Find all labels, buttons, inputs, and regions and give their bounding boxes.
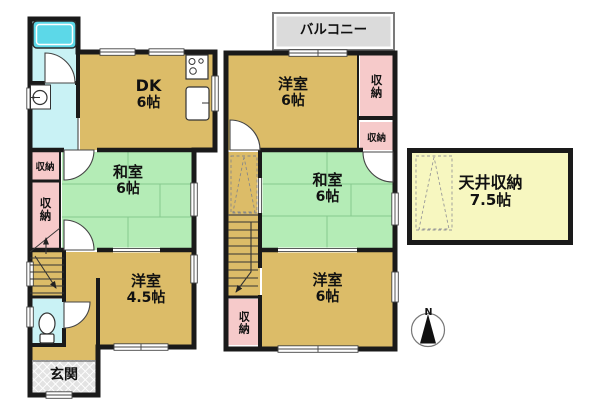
compass-north-label: N	[422, 307, 435, 318]
fusuma-1f	[113, 248, 160, 253]
washbasin-icon	[31, 85, 51, 109]
ladder-symbol-2f	[233, 157, 255, 212]
storage-sw-label: 収納	[231, 302, 256, 343]
washitsu-1f-label: 和室 6帖	[62, 164, 194, 197]
attic-storage-label: 天井収納 7.5帖	[412, 174, 569, 210]
youshitsu-north-label: 洋室 6帖	[228, 76, 358, 109]
compass-icon	[412, 314, 445, 347]
storage-upper-1f-label: 収納	[30, 159, 60, 173]
washitsu1f-door-arc-bottom	[64, 220, 94, 250]
storage-lower-1f-label: 収納	[33, 186, 58, 232]
balcony-label: バルコニー	[272, 23, 395, 39]
youshitsu45-label: 洋室 4.5帖	[98, 273, 194, 306]
genkan-label: 玄関	[31, 367, 97, 383]
toilet-icon	[39, 313, 55, 343]
bathtub-icon	[33, 21, 76, 48]
storage-ne-tall-label: 収納	[362, 61, 391, 111]
washitsu-2f-label: 和室 6帖	[262, 172, 393, 205]
youshitsu-south-label: 洋室 6帖	[262, 272, 393, 305]
stove-icon	[186, 55, 208, 79]
youshitsu-north-door-arc	[230, 120, 260, 150]
toilet-door-arc	[64, 302, 90, 328]
dk-label: DK 6帖	[82, 77, 215, 111]
stairs-2f-steps	[228, 156, 258, 292]
stairs-1f-steps	[30, 228, 64, 293]
floorplan-canvas: DK 6帖 和室 6帖 洋室 4.5帖 玄関 収納 収納 バルコニー 洋室 6帖…	[0, 0, 600, 419]
storage-ne-small-label: 収納	[359, 130, 394, 144]
bathroom-door-arc	[45, 53, 75, 83]
